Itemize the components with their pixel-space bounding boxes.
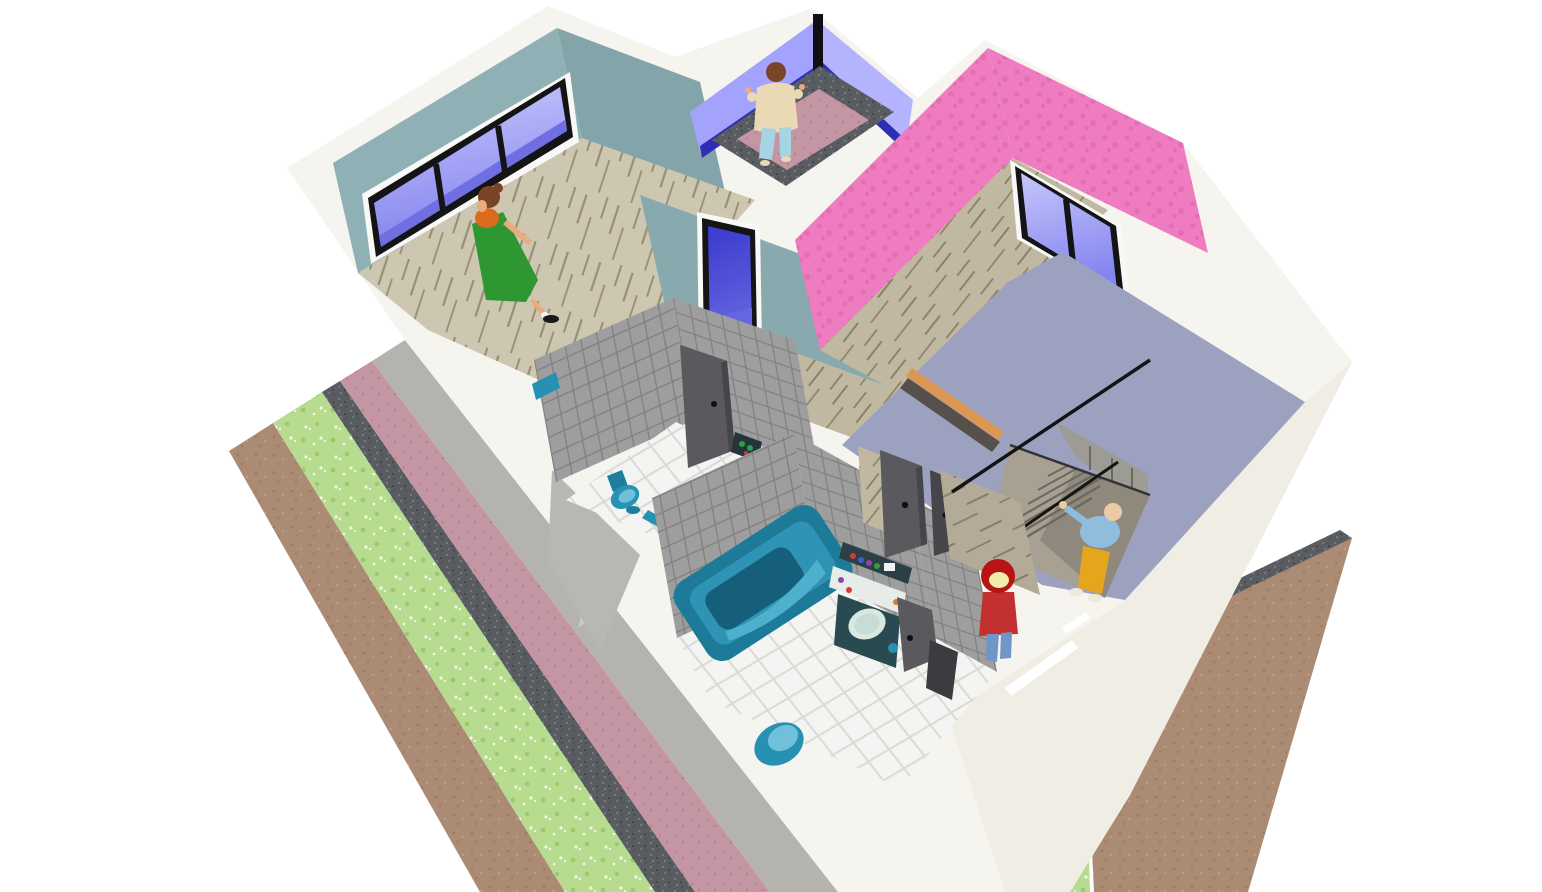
woman-shoe [543, 315, 559, 323]
redhood-body [979, 592, 1018, 636]
floorplan-3d-viewport[interactable] [0, 0, 1542, 892]
child-pant-leg [779, 127, 791, 157]
wc-door-handle [711, 401, 717, 407]
woman-top [475, 208, 499, 228]
child-arm [793, 89, 803, 99]
redhood-face [989, 572, 1009, 588]
man-shoe [1069, 588, 1083, 596]
toilet-base [626, 506, 640, 514]
redhood-leg [1000, 632, 1012, 659]
woman-hair-bun [493, 183, 503, 193]
child-arm [747, 92, 757, 102]
counter-item [838, 577, 844, 583]
wc-door-open [680, 345, 735, 468]
balcony-corner-post [813, 14, 823, 72]
toiletry [858, 557, 864, 563]
counter-item [846, 587, 852, 593]
child-sandal [760, 160, 770, 166]
child-sandal [781, 156, 791, 162]
sink-side-item [888, 643, 898, 653]
man-shoe [1088, 594, 1102, 602]
toiletry [850, 553, 856, 559]
shelf-plant [739, 441, 745, 447]
toiletry-box [884, 563, 895, 571]
hall-door-1 [880, 450, 927, 558]
man-head [1104, 503, 1122, 521]
child-hand [799, 84, 805, 90]
render-stage [0, 0, 1542, 892]
child-hand [745, 87, 751, 93]
hall-door-1-handle [902, 502, 908, 508]
toiletry [866, 560, 872, 566]
woman-face [477, 200, 487, 212]
child-jacket [754, 82, 798, 132]
child-head [766, 62, 786, 82]
toiletry [874, 563, 880, 569]
redhood-leg [986, 634, 999, 662]
man-hand [1059, 501, 1067, 509]
bath-door-handle [907, 635, 913, 641]
shelf-plant [747, 445, 753, 451]
